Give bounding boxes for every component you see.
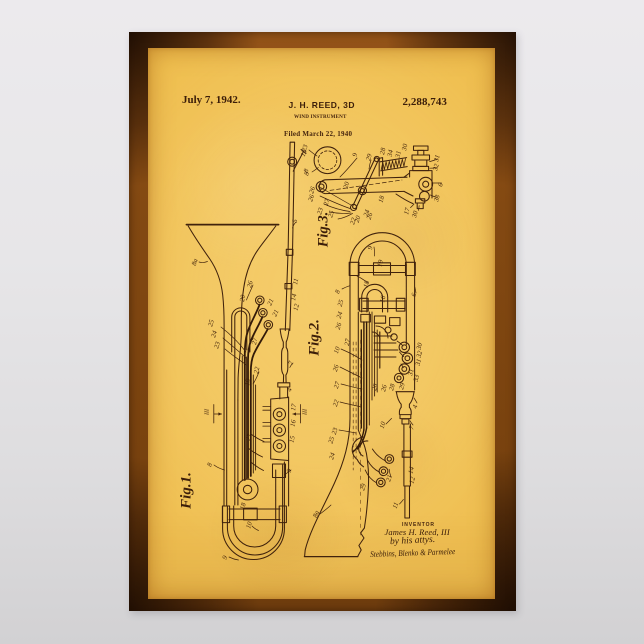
svg-text:8a: 8a [312, 509, 321, 518]
svg-text:8: 8 [334, 289, 342, 295]
svg-text:20: 20 [343, 181, 352, 190]
svg-text:23: 23 [331, 426, 340, 435]
svg-text:20: 20 [354, 214, 363, 223]
svg-text:23: 23 [213, 340, 222, 349]
svg-text:26: 26 [332, 363, 341, 372]
svg-text:33: 33 [412, 374, 421, 384]
svg-text:16: 16 [379, 295, 387, 304]
svg-text:29: 29 [398, 382, 407, 391]
svg-text:24: 24 [336, 310, 345, 319]
svg-text:26: 26 [246, 280, 255, 289]
svg-text:9: 9 [367, 245, 375, 251]
svg-text:32: 32 [432, 163, 441, 173]
svg-text:11: 11 [392, 501, 401, 509]
svg-text:24: 24 [210, 329, 219, 338]
svg-text:26: 26 [335, 321, 344, 330]
svg-text:14: 14 [408, 466, 416, 475]
svg-text:27: 27 [333, 380, 342, 389]
svg-text:11: 11 [292, 278, 300, 286]
svg-text:21: 21 [266, 298, 275, 307]
svg-text:18: 18 [363, 280, 372, 289]
svg-text:III: III [303, 408, 309, 416]
svg-text:7: 7 [288, 360, 296, 366]
svg-text:25: 25 [327, 209, 336, 218]
svg-text:25: 25 [328, 435, 337, 444]
svg-text:31: 31 [414, 358, 423, 367]
svg-text:9: 9 [286, 468, 294, 474]
svg-text:21: 21 [385, 474, 394, 483]
svg-text:30: 30 [411, 210, 420, 220]
svg-text:III: III [205, 408, 211, 416]
svg-text:4: 4 [286, 387, 294, 393]
svg-text:24: 24 [328, 451, 337, 460]
svg-text:7: 7 [408, 425, 416, 431]
svg-text:10: 10 [333, 345, 342, 354]
svg-text:15: 15 [289, 435, 297, 444]
svg-text:32: 32 [415, 350, 424, 360]
svg-text:10: 10 [245, 520, 254, 529]
svg-text:31: 31 [433, 154, 442, 163]
svg-text:27: 27 [251, 337, 259, 346]
svg-text:25: 25 [207, 318, 216, 327]
svg-text:30: 30 [401, 143, 410, 153]
svg-text:16: 16 [290, 419, 298, 428]
svg-text:19: 19 [377, 259, 385, 268]
svg-text:29: 29 [359, 482, 368, 491]
svg-text:23: 23 [316, 206, 325, 215]
svg-text:9: 9 [352, 152, 360, 158]
svg-text:8: 8 [206, 462, 214, 468]
svg-text:5: 5 [292, 218, 300, 223]
svg-text:20: 20 [371, 383, 380, 392]
svg-text:21: 21 [271, 309, 280, 318]
svg-text:9: 9 [221, 554, 229, 561]
svg-text:8a: 8a [191, 257, 200, 266]
svg-text:26: 26 [366, 211, 375, 220]
svg-text:28: 28 [388, 383, 397, 392]
svg-text:17: 17 [290, 403, 298, 412]
svg-text:18: 18 [378, 195, 387, 204]
svg-text:27: 27 [323, 197, 332, 206]
svg-text:26: 26 [307, 193, 316, 202]
svg-text:27: 27 [245, 433, 254, 442]
svg-text:12: 12 [293, 303, 301, 312]
svg-text:22: 22 [253, 366, 261, 375]
svg-text:4: 4 [412, 404, 420, 410]
svg-text:10: 10 [379, 420, 388, 429]
svg-text:26: 26 [380, 384, 389, 393]
svg-text:29: 29 [365, 153, 374, 162]
svg-text:25: 25 [337, 298, 346, 307]
svg-text:12: 12 [409, 476, 417, 485]
svg-text:33: 33 [433, 194, 442, 204]
svg-text:22: 22 [332, 398, 341, 407]
svg-text:14: 14 [290, 293, 298, 302]
svg-text:27: 27 [344, 338, 352, 347]
svg-text:20: 20 [239, 294, 247, 303]
